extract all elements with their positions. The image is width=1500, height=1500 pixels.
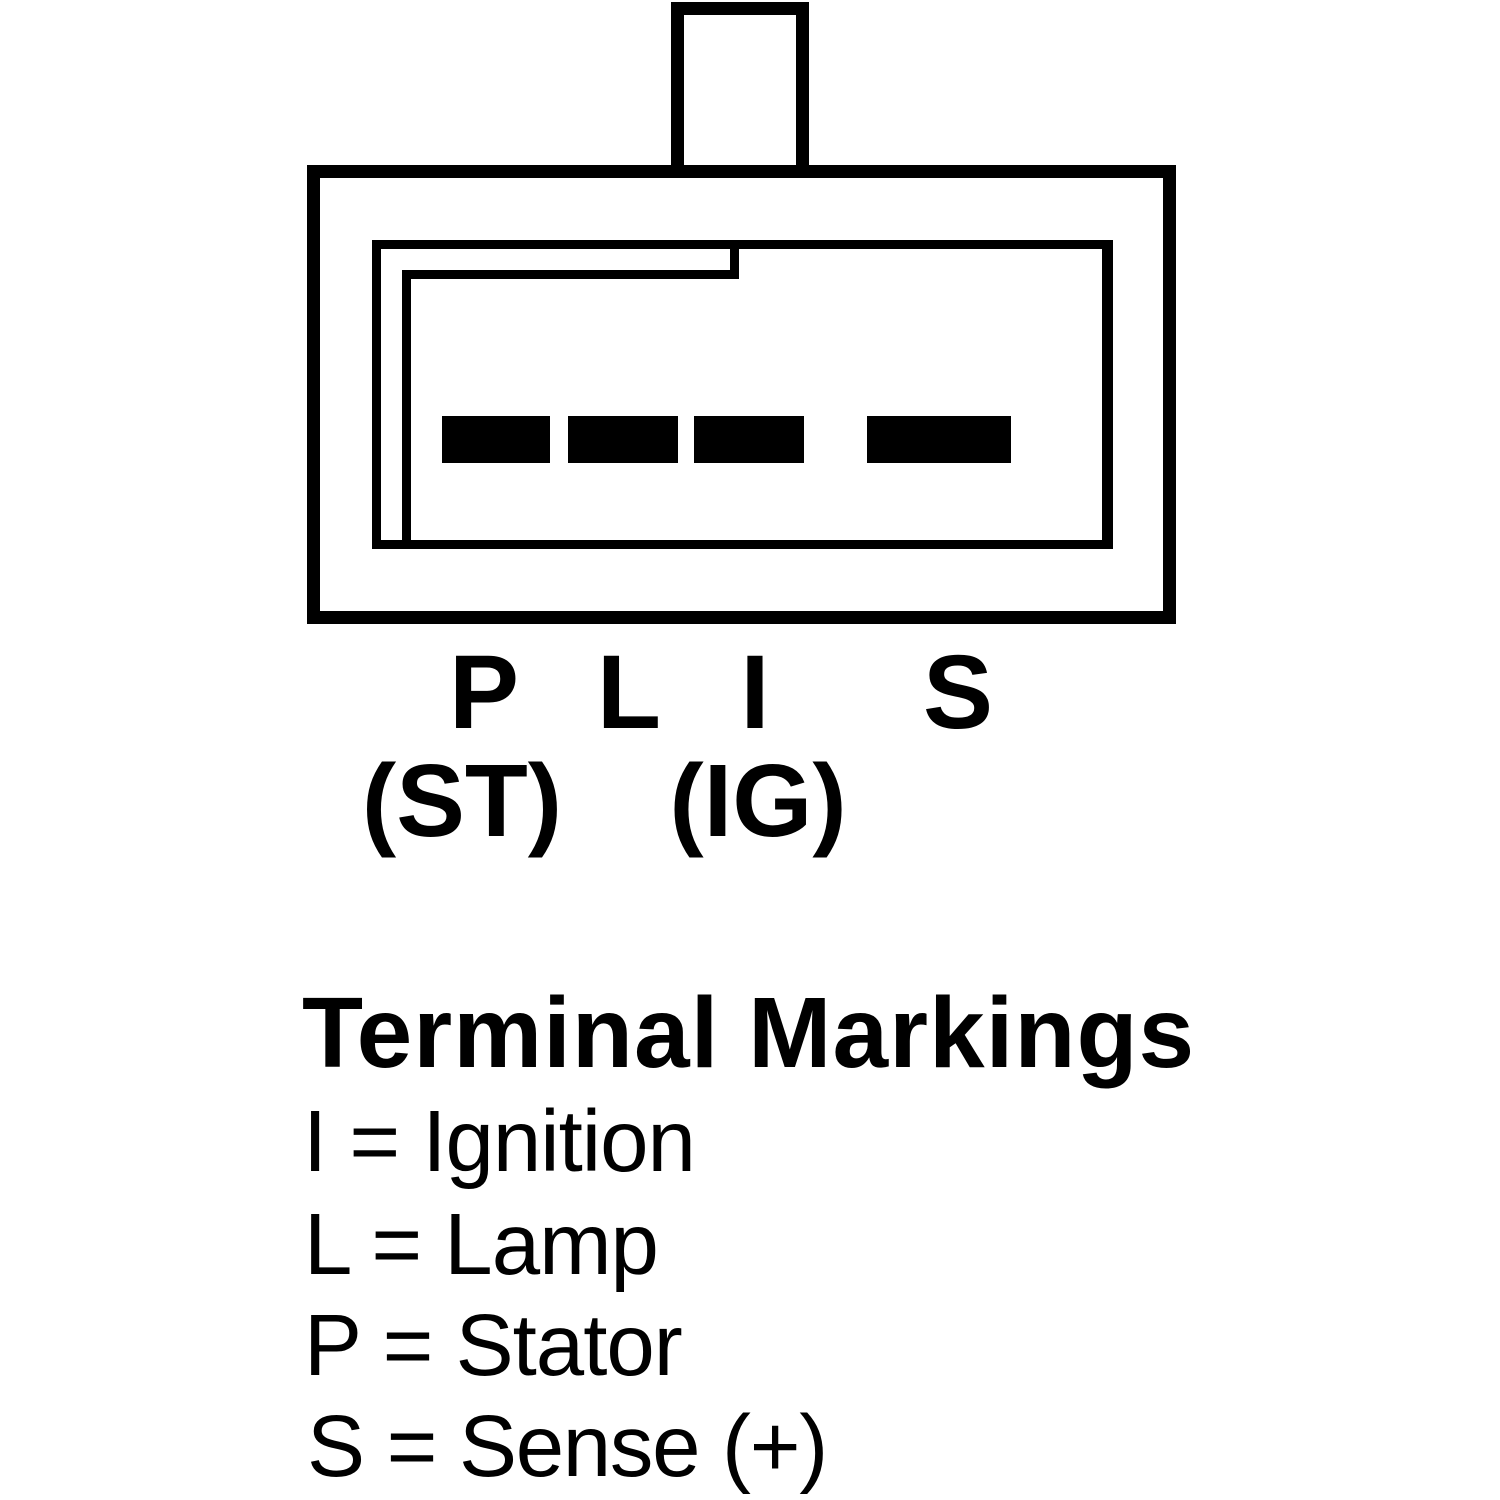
svg-text:Terminal Markings: Terminal Markings <box>302 977 1195 1089</box>
svg-text:L = Lamp: L = Lamp <box>304 1196 658 1293</box>
svg-text:L: L <box>597 634 661 751</box>
svg-text:(IG): (IG) <box>669 743 846 858</box>
svg-text:S: S <box>923 634 993 751</box>
svg-text:P: P <box>449 634 519 751</box>
svg-text:S = Sense (+): S = Sense (+) <box>307 1398 827 1495</box>
svg-text:P = Stator: P = Stator <box>304 1297 682 1394</box>
svg-text:I = Ignition: I = Ignition <box>303 1093 695 1190</box>
svg-text:I: I <box>740 634 769 751</box>
svg-text:(ST): (ST) <box>362 743 562 858</box>
